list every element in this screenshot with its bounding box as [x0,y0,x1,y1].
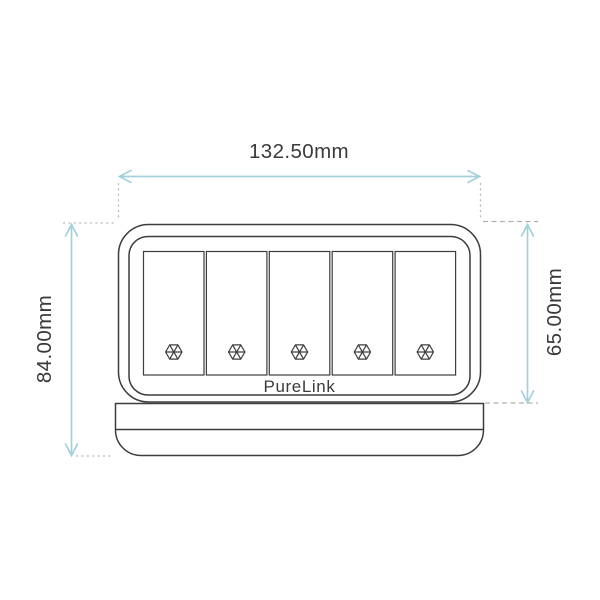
technical-drawing-canvas: 132.50mm 84.00mm 65.00mm PureLink [0,0,600,600]
overall-height-dimension-label: 84.00mm [34,239,56,439]
brand-logo-text: PureLink [219,377,380,397]
mounting-base [116,404,484,456]
panel-button [269,252,330,376]
panel-height-dimension-label: 65.00mm [544,212,566,412]
width-dimension-label: 132.50mm [199,141,399,163]
overall-height-dimension-line [66,225,78,456]
panel-buttons [144,252,456,376]
width-dimension-line [120,171,480,183]
panel-button [206,252,267,376]
panel-button [395,252,456,376]
panel-button [144,252,205,376]
panel-height-dimension-line [522,225,534,403]
dimension-drawing-svg [0,0,600,600]
keypad-panel [119,225,481,403]
panel-button [332,252,393,376]
